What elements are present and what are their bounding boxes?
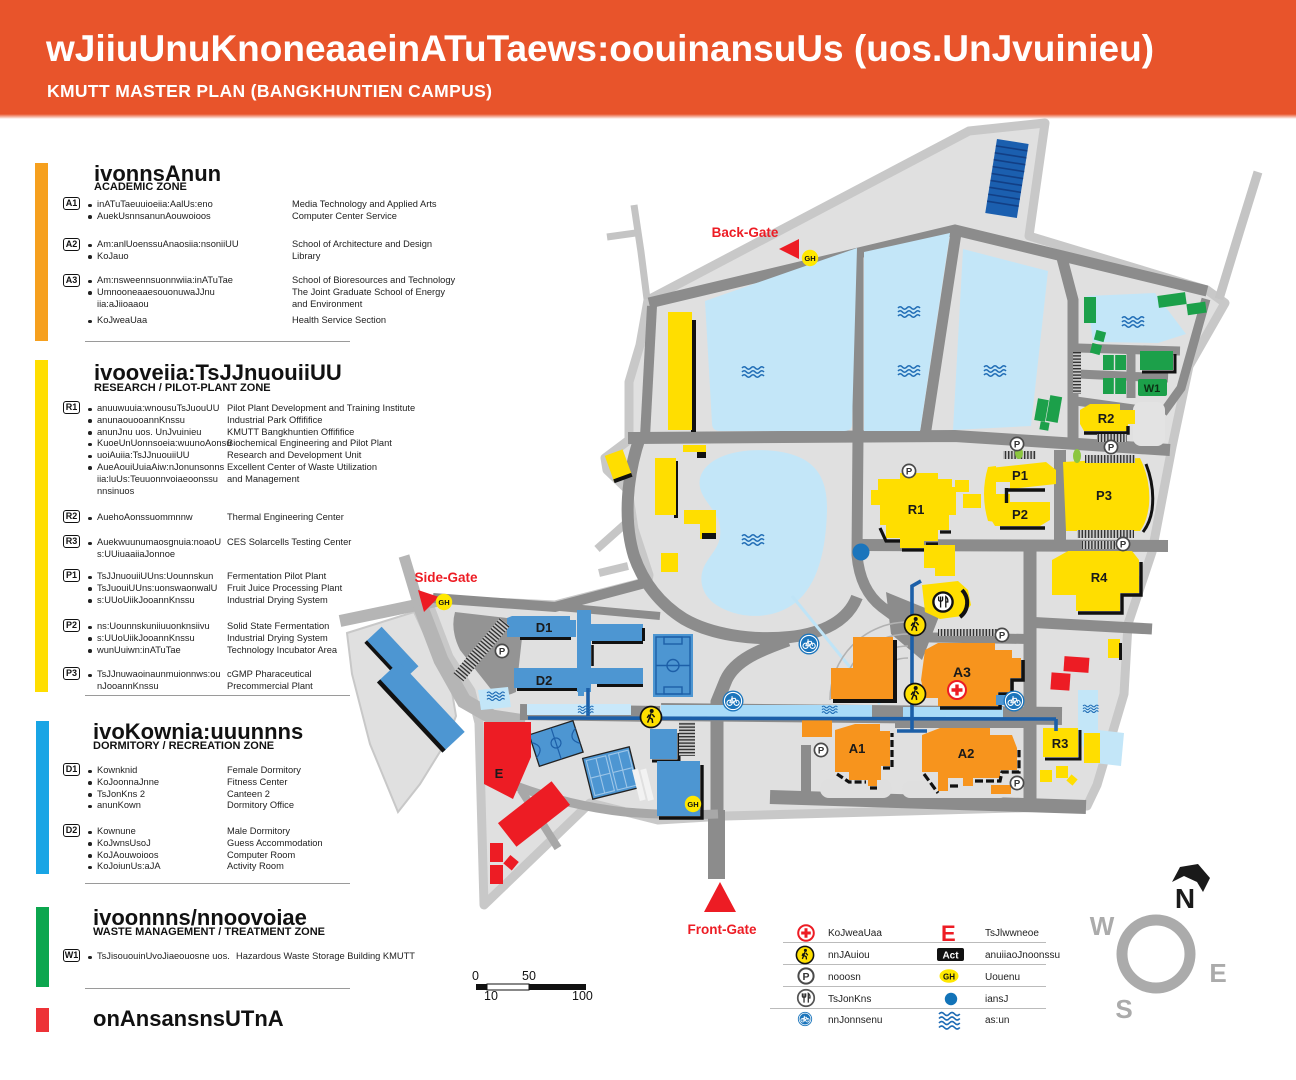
svg-text:GH: GH	[943, 973, 955, 982]
svg-text:0: 0	[472, 969, 479, 983]
svg-text:E: E	[941, 921, 956, 946]
svg-text:Uouenu: Uouenu	[985, 972, 1020, 983]
svg-text:Act: Act	[942, 951, 959, 962]
svg-text:TsJlwwneoe: TsJlwwneoe	[985, 928, 1039, 939]
svg-text:D2: D2	[536, 673, 553, 688]
svg-text:A1: A1	[849, 741, 866, 756]
svg-text:R4: R4	[1091, 570, 1108, 585]
svg-text:KoJweaUaa: KoJweaUaa	[828, 928, 882, 939]
svg-text:R1: R1	[908, 502, 925, 517]
svg-text:A3: A3	[953, 664, 971, 680]
svg-text:nnJonnsenu: nnJonnsenu	[828, 1015, 883, 1026]
svg-text:as:un: as:un	[985, 1015, 1009, 1026]
svg-text:W1: W1	[1144, 383, 1161, 395]
svg-text:R2: R2	[1098, 411, 1115, 426]
svg-text:P2: P2	[1012, 507, 1028, 522]
svg-text:R3: R3	[1052, 736, 1069, 751]
svg-text:E: E	[495, 766, 504, 781]
svg-text:W: W	[1090, 911, 1115, 941]
svg-text:A2: A2	[958, 746, 975, 761]
svg-text:D1: D1	[536, 620, 553, 635]
svg-text:S: S	[1115, 994, 1132, 1024]
svg-text:Front-Gate: Front-Gate	[688, 922, 757, 937]
svg-text:nnJAuiou: nnJAuiou	[828, 950, 870, 961]
svg-text:E: E	[1209, 958, 1226, 988]
svg-text:nooosn: nooosn	[828, 972, 861, 983]
svg-text:P: P	[802, 971, 809, 983]
svg-text:100: 100	[572, 989, 593, 1003]
svg-text:TsJonKns: TsJonKns	[828, 994, 871, 1005]
svg-text:50: 50	[522, 969, 536, 983]
svg-text:P3: P3	[1096, 488, 1112, 503]
svg-text:iansJ: iansJ	[985, 994, 1008, 1005]
svg-text:anuiiaoJnoonssu: anuiiaoJnoonssu	[985, 950, 1060, 961]
svg-text:Back-Gate: Back-Gate	[712, 225, 779, 240]
svg-text:N: N	[1175, 883, 1195, 914]
svg-text:10: 10	[484, 989, 498, 1003]
svg-text:P1: P1	[1012, 468, 1028, 483]
